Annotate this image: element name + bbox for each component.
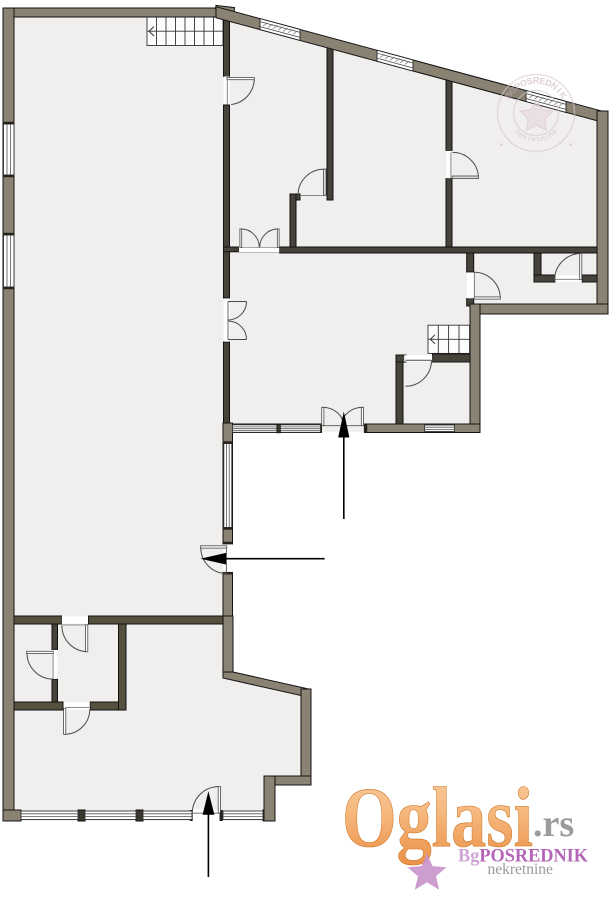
svg-text:e: e [531,134,536,143]
svg-text:nekretnine: nekretnine [488,861,554,878]
svg-text:.rs: .rs [533,803,574,845]
